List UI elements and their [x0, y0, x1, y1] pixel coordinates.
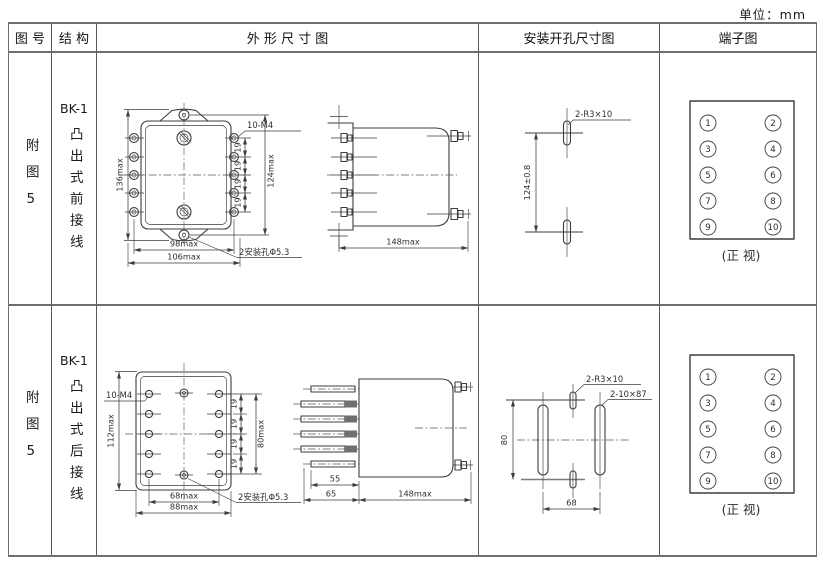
row2-structure-text: 凸出式后接线: [67, 379, 81, 508]
pin-7: 7: [705, 451, 710, 461]
front-view: [119, 103, 251, 246]
row2-figure-no-text: 附图5: [23, 390, 37, 472]
pin-3: 3: [705, 399, 710, 409]
pin-9: 9: [705, 223, 710, 233]
terminal-pins: 1 3 5 7 9 2 4 6 8 10: [700, 369, 781, 489]
dim-depth: 148max: [386, 237, 420, 247]
pin-2: 2: [770, 373, 775, 383]
pin-6: 6: [770, 425, 775, 435]
dim-mount-v-spacing: 80: [499, 435, 509, 445]
row1-structure: BK-1 凸出式前接线: [52, 53, 97, 306]
header-mounting-dims-label: 安装开孔尺寸图: [523, 28, 614, 47]
dim-mount-h-spacing: 68: [566, 498, 576, 508]
dim-pitch: 19: [233, 161, 243, 171]
row1-figure-no-text: 附图5: [23, 138, 37, 220]
header-mounting-dims: 安装开孔尺寸图: [479, 24, 660, 53]
header-outline-dims-label: 外 形 尺 寸 图: [247, 28, 329, 47]
mount-holes-label: 2安装孔Φ5.3: [239, 247, 289, 257]
pin-3: 3: [705, 145, 710, 155]
row2-structure: BK-1 凸出式后接线: [52, 306, 97, 555]
dim-front-section: 65: [326, 489, 336, 499]
pin-8: 8: [770, 197, 775, 207]
dim-pitch: 19: [229, 399, 239, 409]
pin-7: 7: [705, 197, 710, 207]
row1-model-label: BK-1: [60, 101, 88, 116]
dim-pitch: 19: [229, 439, 239, 449]
mounting-slots: [506, 384, 629, 498]
dim-mount-height: 80max: [256, 420, 266, 448]
pin-5: 5: [705, 425, 710, 435]
front-view-caption: (正 视): [721, 502, 760, 517]
dim-overall-height: 136max: [115, 158, 125, 192]
side-view: [293, 379, 473, 477]
pin-10: 10: [767, 223, 778, 233]
dim-pitch: 19: [229, 459, 239, 469]
dim-terminal-width: 98max: [170, 239, 198, 249]
front-dimensions: 112max 80max 19 19 19 19 10-M4: [104, 372, 301, 518]
header-figure-no: 图 号: [9, 24, 52, 53]
terminal-pins: 1 3 5 7 9 2 4 6 8 10: [700, 115, 781, 235]
pin-1: 1: [705, 119, 710, 129]
outline-drawing-front-wiring: 136max 124max 19 19 19 19 10-M4 98ma: [97, 53, 478, 304]
row2-terminal-cell: 1 3 5 7 9 2 4 6 8 10 (正 视): [660, 306, 816, 555]
dim-stud-length: 55: [330, 474, 340, 484]
pin-1: 1: [705, 373, 710, 383]
thread-label: 10-M4: [106, 390, 132, 400]
row1-mounting-cell: 124±0.8 2-R3×10: [479, 53, 660, 306]
dim-terminal-width: 68max: [170, 491, 198, 501]
thread-label: 10-M4: [247, 120, 273, 130]
pin-6: 6: [770, 171, 775, 181]
pin-5: 5: [705, 171, 710, 181]
header-terminal-diagram-label: 端子图: [718, 28, 757, 47]
dim-overall-width: 106max: [167, 252, 201, 262]
front-view-caption: (正 视): [721, 248, 760, 263]
row2-mounting-cell: 80 68 2-R3×10 2-10×87: [479, 306, 660, 555]
mount-holes-callout: 2-R3×10: [586, 374, 623, 384]
row1-figure-no: 附图5: [9, 53, 52, 306]
dim-pitch: 19: [229, 419, 239, 429]
header-terminal-diagram: 端子图: [660, 24, 816, 53]
row2-outline-cell: 112max 80max 19 19 19 19 10-M4: [97, 306, 479, 555]
pin-4: 4: [770, 399, 775, 409]
row1-terminal-cell: 1 3 5 7 9 2 4 6 8 10 (正 视): [660, 53, 816, 306]
pin-2: 2: [770, 119, 775, 129]
mount-holes-label: 2安装孔Φ5.3: [238, 492, 288, 502]
mounting-dimensions: 124±0.8 2-R3×10: [522, 109, 631, 232]
pin-10: 10: [767, 477, 778, 487]
dim-mount-height: 124max: [266, 154, 276, 188]
dim-pitch: 19: [233, 179, 243, 189]
front-dimensions: 136max 124max 19 19 19 19 10-M4 98ma: [115, 110, 303, 268]
row2-model-label: BK-1: [60, 353, 88, 368]
mounting-slot-bottom: [525, 207, 583, 257]
terminal-diagram-front-wiring: 1 3 5 7 9 2 4 6 8 10 (正 视): [661, 53, 816, 304]
outline-drawing-rear-wiring: 112max 80max 19 19 19 19 10-M4: [97, 307, 478, 554]
spec-table: 图 号 结 构 外 形 尺 寸 图 安装开孔尺寸图 端子图 附图5 BK-1 凸…: [8, 22, 817, 557]
row2-figure-no: 附图5: [9, 306, 52, 555]
header-figure-no-label: 图 号: [15, 28, 45, 47]
mounting-drawing-front-wiring: 124±0.8 2-R3×10: [479, 53, 659, 304]
pin-9: 9: [705, 477, 710, 487]
side-view: [327, 105, 471, 247]
dim-pitch: 19: [233, 197, 243, 207]
header-outline-dims: 外 形 尺 寸 图: [97, 24, 479, 53]
mount-holes-callout: 2-R3×10: [575, 109, 612, 119]
header-structure-label: 结 构: [59, 28, 89, 47]
row1-outline-cell: 136max 124max 19 19 19 19 10-M4 98ma: [97, 53, 479, 306]
terminal-diagram-rear-wiring: 1 3 5 7 9 2 4 6 8 10 (正 视): [661, 307, 816, 554]
dim-depth: 148max: [398, 489, 432, 499]
row1-structure-text: 凸出式前接线: [67, 127, 81, 256]
side-dimensions: 55 65 148max: [304, 468, 471, 504]
unit-label: 单位：mm: [739, 4, 806, 23]
header-structure: 结 构: [52, 24, 97, 53]
dim-overall-height: 112max: [106, 414, 116, 448]
pin-8: 8: [770, 451, 775, 461]
rear-studs: [293, 386, 359, 467]
mounting-drawing-rear-wiring: 80 68 2-R3×10 2-10×87: [479, 307, 659, 554]
dim-overall-width: 88max: [170, 502, 198, 512]
dim-mount-v-spacing: 124±0.8: [522, 165, 532, 201]
front-studs: [453, 382, 473, 470]
mount-slots-callout: 2-10×87: [610, 389, 647, 399]
front-view: [125, 363, 245, 500]
dim-pitch: 19: [233, 142, 243, 152]
pin-4: 4: [770, 145, 775, 155]
